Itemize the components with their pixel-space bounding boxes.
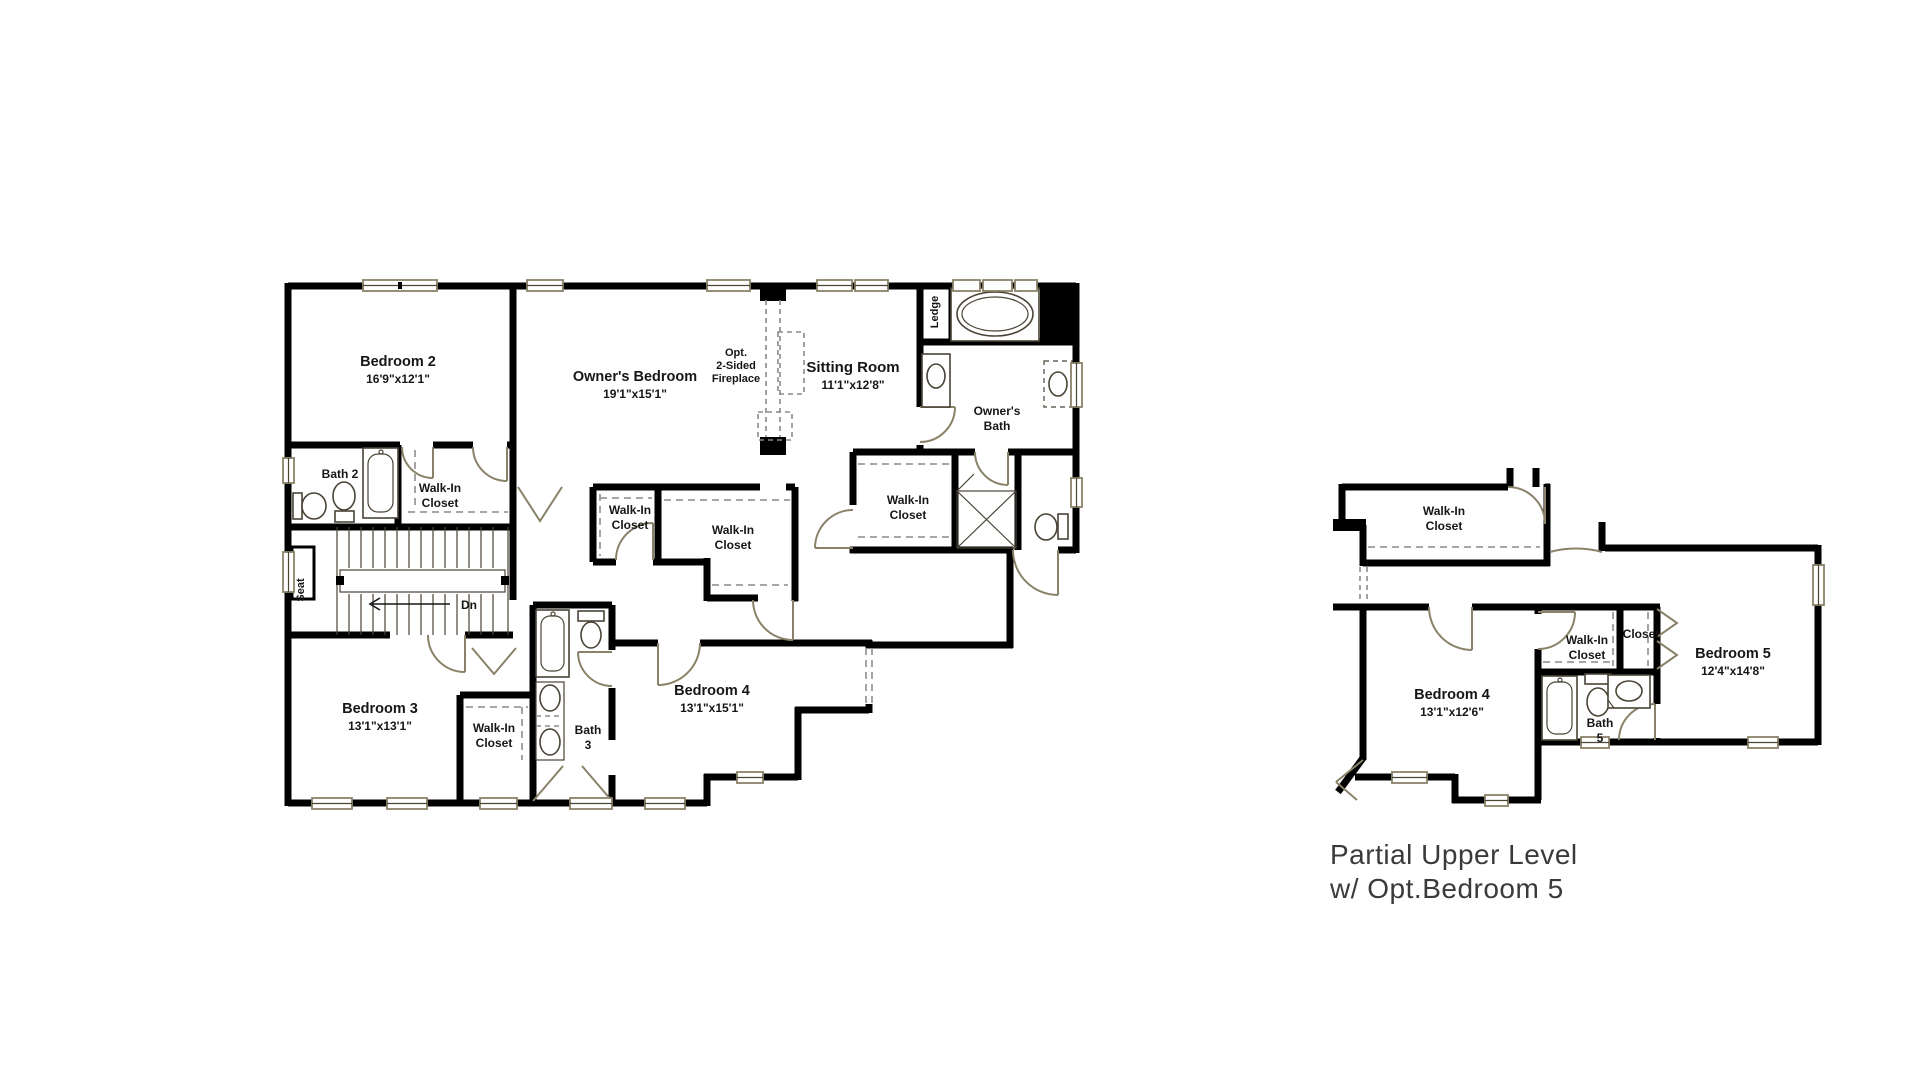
stairs-down-arrow xyxy=(370,598,450,610)
window-icon xyxy=(817,280,852,291)
room-label: Walk-In xyxy=(473,721,515,735)
window-icon xyxy=(1485,795,1508,806)
window-icon xyxy=(283,458,294,483)
sink-icon xyxy=(1608,675,1650,708)
room-label: Walk-In xyxy=(1423,504,1465,518)
room-label: Bedroom 4 xyxy=(1414,687,1490,703)
bathtub-icon xyxy=(951,288,1039,341)
room-dims: 19'1"x15'1" xyxy=(603,387,667,401)
room-label: Bedroom 4 xyxy=(674,683,750,699)
window-icon xyxy=(1813,565,1824,605)
stair-landing-rail xyxy=(340,570,505,592)
bathtub-icon xyxy=(1542,676,1577,740)
room-label: 5 xyxy=(1597,731,1604,745)
caption-line-2: w/ Opt.Bedroom 5 xyxy=(1329,873,1564,904)
toilet-icon xyxy=(1585,674,1611,716)
fireplace-wall-stub xyxy=(760,283,786,301)
room-label: Closet xyxy=(1623,627,1660,641)
room-label: Bath xyxy=(984,419,1011,433)
seat-label: Seat xyxy=(295,578,307,602)
window-icon xyxy=(480,798,517,809)
caption: Partial Upper Level w/ Opt.Bedroom 5 xyxy=(1329,839,1578,904)
window-icon xyxy=(1581,737,1609,748)
room-label: Walk-In xyxy=(609,503,651,517)
room-label: 3 xyxy=(585,738,592,752)
room-label: Bath 2 xyxy=(322,467,359,481)
room-label: Owner's Bedroom xyxy=(573,369,697,385)
sink-icon xyxy=(536,682,564,760)
double-door-zigzag xyxy=(472,648,516,674)
room-label: Closet xyxy=(476,736,513,750)
window-icon xyxy=(707,280,750,291)
window-icon xyxy=(855,280,888,291)
window-icon xyxy=(953,280,1037,291)
double-door-zigzag xyxy=(518,487,562,521)
sink-icon xyxy=(333,482,355,522)
room-label: Bedroom 2 xyxy=(360,354,436,370)
fireplace-note: 2-Sided xyxy=(716,360,756,372)
fireplace-note: Opt. xyxy=(725,347,747,359)
room-label: Closet xyxy=(1426,519,1463,533)
window-icon xyxy=(1748,737,1778,748)
window-icon xyxy=(283,552,294,592)
room-label: Closet xyxy=(422,496,459,510)
room-label: Walk-In xyxy=(712,523,754,537)
room-dims: 13'1"x12'6" xyxy=(1420,705,1484,719)
window-icon xyxy=(312,798,352,809)
room-label: Closet xyxy=(715,538,752,552)
room-label: Closet xyxy=(1569,648,1606,662)
stairs-dn-label: Dn xyxy=(461,598,477,612)
wall-corner-block xyxy=(1040,283,1076,345)
room-label: Walk-In xyxy=(887,493,929,507)
stairs xyxy=(336,527,509,635)
toilet-icon xyxy=(293,493,326,519)
room-label: Bath xyxy=(575,723,602,737)
room-label: Closet xyxy=(890,508,927,522)
room-label: Walk-In xyxy=(1566,633,1608,647)
floor-plan-canvas: Bedroom 2 16'9"x12'1" Owner's Bedroom 19… xyxy=(0,0,1920,1080)
ledge-label: Ledge xyxy=(929,296,941,328)
toilet-icon xyxy=(1035,514,1068,540)
optional-plan-doors xyxy=(1336,487,1677,800)
room-label: Walk-In xyxy=(419,481,461,495)
room-dims: 16'9"x12'1" xyxy=(366,372,430,386)
caption-line-1: Partial Upper Level xyxy=(1330,839,1578,870)
window-icon xyxy=(363,280,437,291)
room-label: Bedroom 3 xyxy=(342,701,418,717)
room-label: Sitting Room xyxy=(806,359,899,376)
window-icon xyxy=(737,772,763,783)
double-door-leaves xyxy=(533,766,612,801)
room-label: Bath xyxy=(1587,716,1614,730)
room-dims: 12'4"x14'8" xyxy=(1701,664,1765,678)
window-icon xyxy=(1071,478,1082,507)
room-label: Closet xyxy=(612,518,649,532)
room-label: Owner's xyxy=(974,404,1021,418)
room-dims: 13'1"x13'1" xyxy=(348,719,412,733)
bathtub-icon xyxy=(363,448,398,518)
window-icon xyxy=(1392,772,1427,783)
bathtub-icon xyxy=(536,610,569,677)
floorplan-page: Bedroom 2 16'9"x12'1" Owner's Bedroom 19… xyxy=(0,0,1920,1080)
main-plan: Bedroom 2 16'9"x12'1" Owner's Bedroom 19… xyxy=(283,280,1082,809)
window-icon xyxy=(645,798,685,809)
optional-fireplace-outline xyxy=(758,300,804,440)
optional-plan: Walk-In Closet Bedroom 4 13'1"x12'6" Wal… xyxy=(1333,468,1824,806)
sink-icon xyxy=(1044,361,1072,407)
window-icon xyxy=(570,798,612,809)
bath2-fixtures xyxy=(293,448,398,522)
room-label: Bedroom 5 xyxy=(1695,646,1771,662)
toilet-icon xyxy=(578,611,604,648)
bath3-fixtures xyxy=(536,610,604,760)
sink-icon xyxy=(922,354,950,407)
window-icon xyxy=(527,280,563,291)
window-icon xyxy=(387,798,427,809)
room-dims: 13'1"x15'1" xyxy=(680,701,744,715)
room-dims: 11'1"x12'8" xyxy=(821,378,884,392)
window-icon xyxy=(1071,363,1082,407)
fireplace-note: Fireplace xyxy=(712,373,760,385)
